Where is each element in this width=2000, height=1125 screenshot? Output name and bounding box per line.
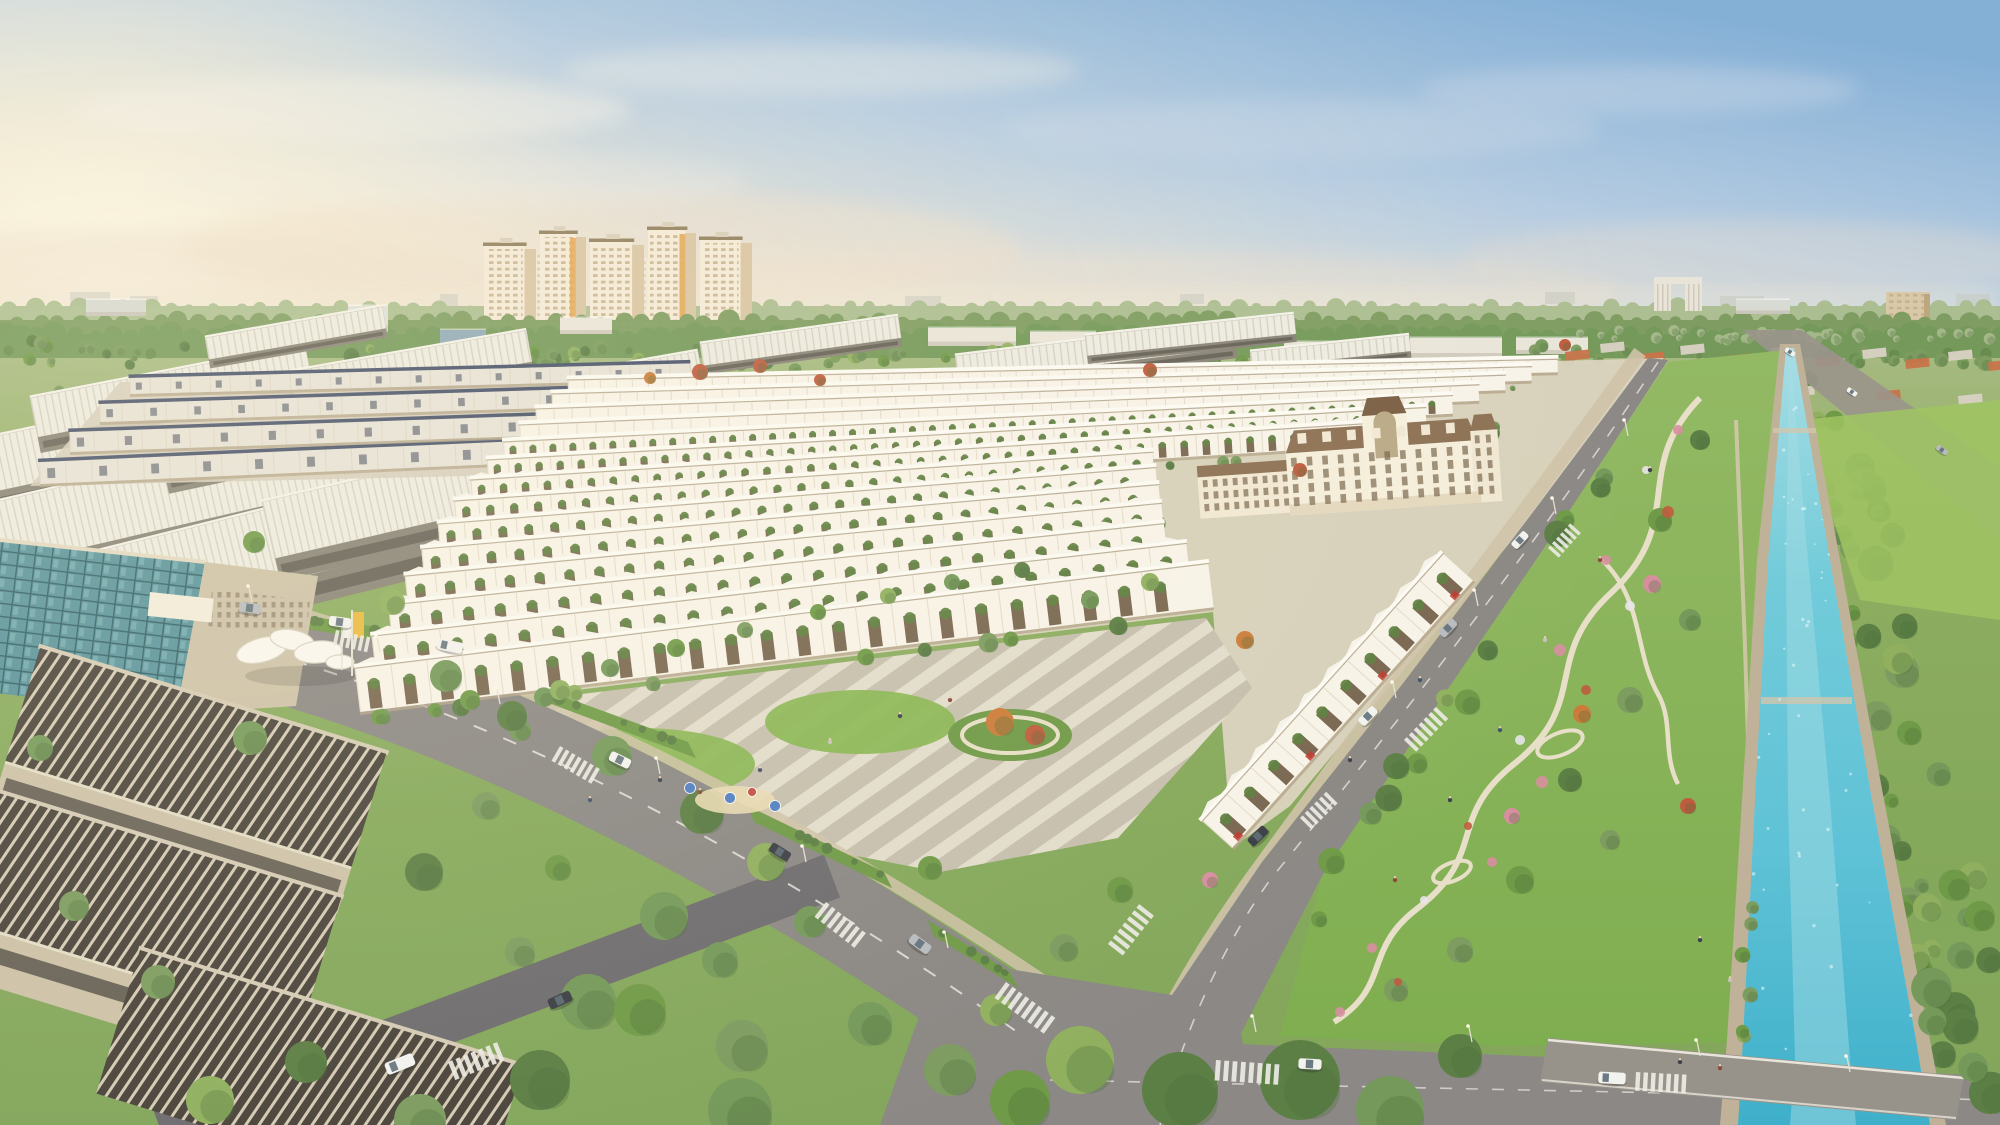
rendering-stage: [0, 0, 2000, 1125]
aerial-township-render: [0, 0, 2000, 1125]
sunlight-overlay: [0, 0, 2000, 1125]
